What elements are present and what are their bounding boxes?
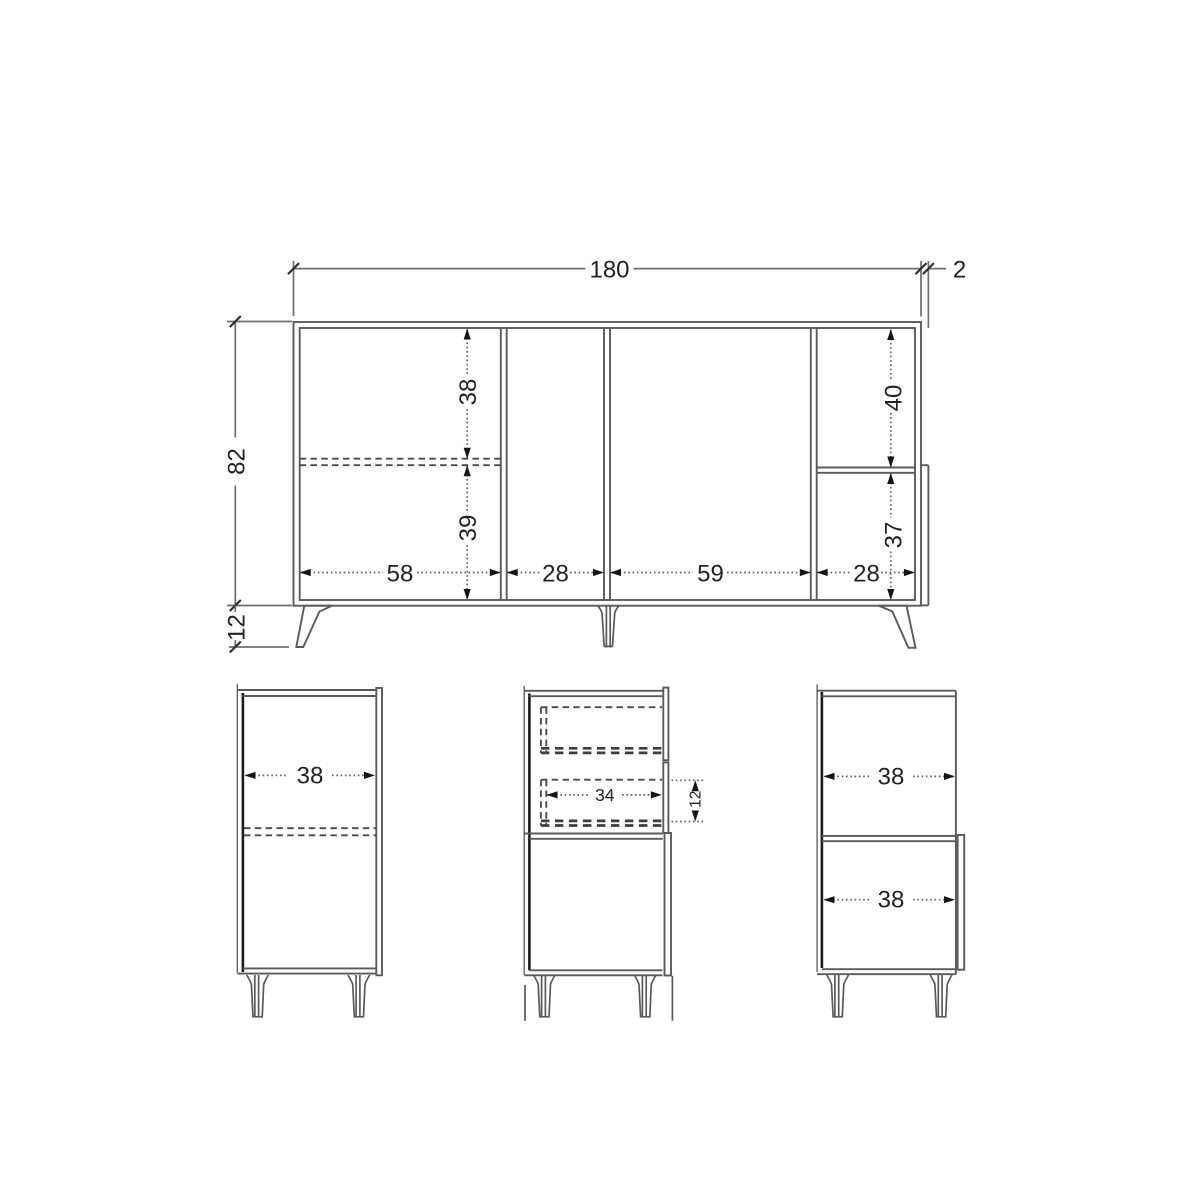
svg-text:82: 82 [224, 448, 251, 475]
svg-text:39: 39 [455, 515, 482, 542]
svg-text:40: 40 [881, 385, 908, 412]
svg-text:180: 180 [589, 257, 629, 284]
svg-text:37: 37 [881, 522, 908, 549]
svg-text:38: 38 [455, 379, 482, 406]
svg-text:12: 12 [224, 614, 251, 641]
svg-text:59: 59 [697, 561, 724, 588]
svg-text:34: 34 [595, 785, 615, 805]
svg-text:38: 38 [878, 887, 905, 914]
svg-text:28: 28 [853, 561, 880, 588]
svg-text:58: 58 [387, 561, 414, 588]
svg-text:12: 12 [687, 791, 704, 808]
svg-text:38: 38 [878, 763, 905, 790]
svg-text:28: 28 [542, 561, 569, 588]
svg-text:38: 38 [297, 762, 324, 789]
svg-text:2: 2 [953, 257, 966, 284]
